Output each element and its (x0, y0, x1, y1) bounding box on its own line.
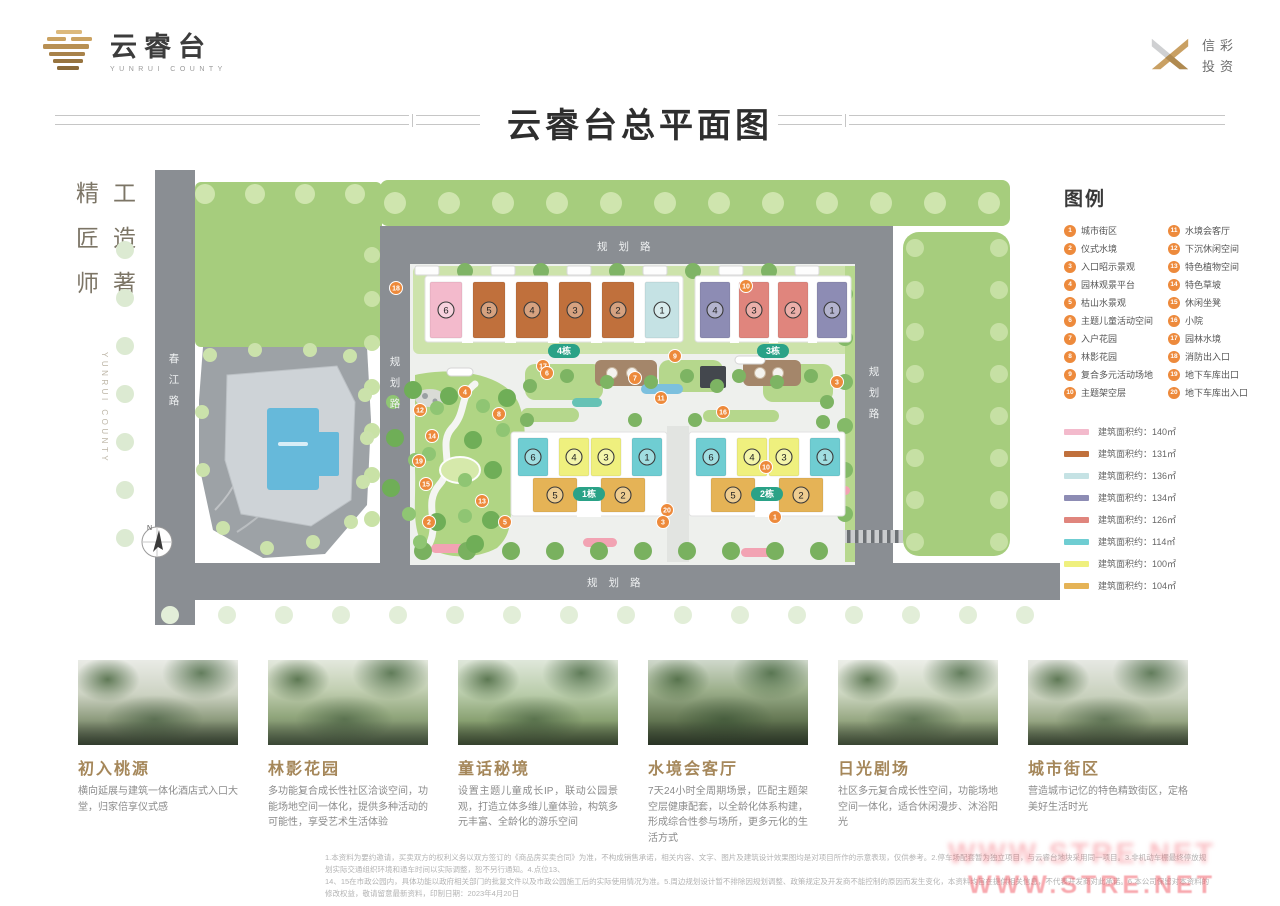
planter (795, 266, 819, 275)
area-legend-row: 建筑面积约：114㎡ (1064, 535, 1278, 548)
tree-icon (990, 323, 1008, 341)
map-marker-number: 5 (503, 519, 507, 526)
legend-title: 图例 (1064, 184, 1278, 211)
legend-item-number: 8 (1064, 351, 1076, 363)
legend-item: 1城市街区 (1064, 224, 1160, 237)
feature-tag (735, 356, 765, 364)
area-color-swatch (1064, 451, 1089, 457)
tree-icon (332, 606, 350, 624)
tree-icon (464, 431, 482, 449)
tree-icon (195, 405, 209, 419)
road-east (855, 226, 893, 576)
tree-icon (116, 433, 134, 451)
legend-item-label: 复合多元活动场地 (1081, 368, 1153, 381)
tree-icon (654, 192, 676, 214)
map-marker-number: 15 (422, 481, 430, 488)
tree-icon (990, 407, 1008, 425)
area-legend-row: 建筑面积约：126㎡ (1064, 513, 1278, 526)
legend-item-number: 15 (1168, 297, 1180, 309)
legend-item-number: 11 (1168, 225, 1180, 237)
tree-icon (458, 509, 472, 523)
planter (567, 266, 591, 275)
tree-icon (466, 535, 484, 553)
planter (643, 266, 667, 275)
legend-item-number: 1 (1064, 225, 1076, 237)
feature-image (838, 660, 998, 745)
map-marker-number: 14 (428, 433, 436, 440)
legend-item: 14特色草坡 (1168, 278, 1248, 291)
tree-icon (248, 343, 262, 357)
tree-icon (503, 606, 521, 624)
tree-icon (116, 529, 134, 547)
tree-icon (364, 291, 380, 307)
tree-icon (674, 606, 692, 624)
map-marker-number: 13 (478, 498, 486, 505)
map-marker-number: 7 (633, 375, 637, 382)
tree-icon (906, 407, 924, 425)
tree-icon (358, 388, 372, 402)
map-marker-number: 9 (673, 353, 677, 360)
tree-icon (546, 542, 564, 560)
tree-icon (446, 606, 464, 624)
tree-icon (678, 542, 696, 560)
legend-item: 9复合多元活动场地 (1064, 368, 1160, 381)
feature-image (648, 660, 808, 745)
legend-item: 16小院 (1168, 314, 1248, 327)
map-marker-number: 8 (497, 411, 501, 418)
building-core (634, 277, 645, 343)
unit-number: 3 (603, 452, 608, 463)
legend-item-label: 主题架空层 (1081, 386, 1126, 399)
corp-logo: 信彩 投资 (1148, 32, 1238, 81)
tree-icon (1016, 606, 1034, 624)
road-label: 划 (869, 386, 880, 399)
map-marker-number: 10 (742, 283, 750, 290)
planter (719, 266, 743, 275)
legend-item-label: 林影花园 (1081, 350, 1117, 363)
tree-icon (762, 192, 784, 214)
area-label: 建筑面积约：134㎡ (1098, 491, 1176, 504)
unit-number: 3 (751, 305, 756, 316)
tree-icon (810, 542, 828, 560)
legend-item: 19地下车库出口 (1168, 368, 1248, 381)
tree-icon (990, 239, 1008, 257)
legend-item-label: 入口昭示景观 (1081, 260, 1135, 273)
map-marker-number: 3 (835, 379, 839, 386)
tree-icon (482, 511, 500, 529)
tree-icon (306, 535, 320, 549)
area-label: 建筑面积约：100㎡ (1098, 557, 1176, 570)
road-label: 规 (869, 365, 880, 378)
unit-number: 3 (781, 452, 786, 463)
tree-icon (906, 281, 924, 299)
tree-icon (590, 542, 608, 560)
tree-icon (906, 323, 924, 341)
building-core (548, 433, 559, 481)
tree-icon (203, 348, 217, 362)
building-core (769, 277, 778, 343)
tree-icon (990, 533, 1008, 551)
brand-logo-icon (40, 28, 96, 79)
tree-icon (438, 192, 460, 214)
building-tag-label: 3栋 (766, 345, 780, 356)
tree-icon (600, 375, 614, 389)
unit-number: 2 (620, 490, 625, 501)
tree-icon (484, 461, 502, 479)
tree-icon (644, 375, 658, 389)
master-plan-map: 6543214栋43213栋6431521栋6431522栋 181091767… (75, 170, 1060, 625)
disclaimer-line1: 1.本资料为要约邀请，买卖双方的权利义务以双方签订的《商品房买卖合同》为准，不构… (325, 852, 1213, 876)
tree-icon (906, 239, 924, 257)
area-color-swatch (1064, 539, 1089, 545)
road-label: 江 (169, 374, 180, 386)
legend-item-label: 特色草坡 (1185, 278, 1221, 291)
legend-item-label: 消防出入口 (1185, 350, 1230, 363)
disclaimer: 1.本资料为要约邀请，买卖双方的权利义务以双方签订的《商品房买卖合同》为准，不构… (325, 852, 1213, 900)
feature-card: 日光剧场社区多元复合成长性空间，功能场地空间一体化，适合休闲漫步、沐浴阳光 (838, 660, 998, 846)
road-label: 春 (169, 353, 180, 365)
area-label: 建筑面积约：114㎡ (1098, 535, 1175, 548)
tree-icon (634, 542, 652, 560)
unit-number: 4 (749, 452, 754, 463)
legend-item-label: 园林水境 (1185, 332, 1221, 345)
tree-icon (731, 606, 749, 624)
tree-icon (458, 473, 472, 487)
unit-number: 6 (530, 452, 535, 463)
legend-item: 5枯山水景观 (1064, 296, 1160, 309)
building-tag-label: 4栋 (557, 345, 571, 356)
legend-item: 3入口昭示景观 (1064, 260, 1160, 273)
tree-icon (990, 365, 1008, 383)
tree-icon (303, 343, 317, 357)
tree-icon (413, 535, 427, 549)
building-core (808, 277, 817, 343)
tree-icon (364, 335, 380, 351)
legend-item: 2仪式水境 (1064, 242, 1160, 255)
legend-item-number: 12 (1168, 243, 1180, 255)
disclaimer-line2: 14、15在市政公园内，具体功能以政府相关部门的批复文件以及市政公园施工后的实际… (325, 876, 1213, 900)
tree-icon (116, 385, 134, 403)
road-label: 划 (390, 376, 401, 389)
tree-icon (732, 369, 746, 383)
tree-icon (476, 399, 490, 413)
tree-icon (440, 387, 458, 405)
legend-item-number: 9 (1064, 369, 1076, 381)
feature-image (268, 660, 428, 745)
area-legend-row: 建筑面积约：136㎡ (1064, 469, 1278, 482)
area-label: 建筑面积约：131㎡ (1098, 447, 1176, 460)
tree-icon (384, 192, 406, 214)
tree-icon (356, 475, 370, 489)
legend-item-label: 水境会客厅 (1185, 224, 1230, 237)
map-marker-number: 6 (545, 370, 549, 377)
feature-card: 童话秘境设置主题儿童成长IP，联动公园景观，打造立体多维儿童体验，构筑多元丰富、… (458, 660, 618, 846)
tree-icon (343, 349, 357, 363)
tree-icon (906, 533, 924, 551)
tree-icon (906, 365, 924, 383)
tree-icon (804, 369, 818, 383)
unit-number: 4 (712, 305, 717, 316)
legend-item-number: 18 (1168, 351, 1180, 363)
feature-description: 设置主题儿童成长IP，联动公园景观，打造立体多维儿童体验，构筑多元丰富、全龄化的… (458, 784, 618, 831)
map-marker-number: 4 (463, 389, 467, 396)
tree-icon (680, 369, 694, 383)
building-core (726, 433, 737, 481)
building-core (505, 277, 516, 343)
tree-icon (600, 192, 622, 214)
feature-cards: 初入桃源横向延展与建筑一体化酒店式入口大堂，归家倍享仪式感林影花园多功能复合成长… (78, 660, 1188, 846)
legend-item-label: 特色植物空间 (1185, 260, 1239, 273)
garage-ramp (845, 530, 903, 543)
legend-item-label: 小院 (1185, 314, 1203, 327)
road-label: 路 (869, 407, 880, 420)
building-core (548, 277, 559, 343)
title-ornament-left (55, 116, 480, 124)
unit-number: 2 (798, 490, 803, 501)
feature-title: 日光剧场 (838, 755, 998, 779)
map-marker-number: 2 (427, 519, 431, 526)
legend-item: 7入户花园 (1064, 332, 1160, 345)
tree-icon (688, 413, 702, 427)
unit-number: 1 (829, 305, 834, 316)
tree-icon (218, 606, 236, 624)
feature-description: 横向延展与建筑一体化酒店式入口大堂，归家倍享仪式感 (78, 784, 238, 815)
legend-item: 18消防出入口 (1168, 350, 1248, 363)
unit-number: 1 (822, 452, 827, 463)
legend-item-label: 主题儿童活动空间 (1081, 314, 1153, 327)
tree-icon (196, 463, 210, 477)
feature-image (1028, 660, 1188, 745)
tree-icon (816, 192, 838, 214)
area-color-swatch (1064, 429, 1089, 435)
feature-description: 7天24小时全周期场景，匹配主题架空层健康配套，以全龄化体系构建，形成综合性参与… (648, 784, 808, 846)
area-label: 建筑面积约：136㎡ (1098, 469, 1176, 482)
tree-icon (845, 606, 863, 624)
building-tag-label: 2栋 (760, 488, 774, 499)
area-legend-row: 建筑面积约：100㎡ (1064, 557, 1278, 570)
corp-name-line1: 信彩 (1202, 36, 1238, 57)
tree-icon (816, 415, 830, 429)
feature-title: 林影花园 (268, 755, 428, 779)
tree-icon (902, 606, 920, 624)
brand-logo: 云睿台 YUNRUI COUNTY (40, 28, 227, 79)
tree-icon (364, 247, 380, 263)
tree-icon (116, 241, 134, 259)
feature-title: 初入桃源 (78, 755, 238, 779)
legend-item-number: 2 (1064, 243, 1076, 255)
unit-number: 2 (790, 305, 795, 316)
road-label: 规 (390, 355, 401, 368)
planter (491, 266, 515, 275)
unit-number: 1 (659, 305, 664, 316)
area-legend: 建筑面积约：140㎡建筑面积约：131㎡建筑面积约：136㎡建筑面积约：134㎡… (1064, 425, 1278, 592)
legend-item: 11水境会客厅 (1168, 224, 1248, 237)
unit-number: 2 (615, 305, 620, 316)
brand-name: 云睿台 (110, 34, 227, 61)
tree-icon (116, 481, 134, 499)
legend-item-number: 19 (1168, 369, 1180, 381)
tree-icon (344, 515, 358, 529)
tree-icon (492, 192, 514, 214)
legend-item: 12下沉休闲空间 (1168, 242, 1248, 255)
area-color-swatch (1064, 583, 1089, 589)
legend-item: 15休闲坐凳 (1168, 296, 1248, 309)
corp-name-line2: 投资 (1202, 57, 1238, 78)
building-2栋: 6431522栋 (689, 432, 845, 517)
building-tag-label: 1栋 (582, 488, 596, 499)
road-label: 规划路 (587, 576, 652, 589)
tree-icon (870, 192, 892, 214)
unit-number: 4 (571, 452, 576, 463)
tree-icon (628, 413, 642, 427)
tree-icon (364, 511, 380, 527)
area-color-swatch (1064, 561, 1089, 567)
legend-item-label: 下沉休闲空间 (1185, 242, 1239, 255)
corp-logo-icon (1148, 32, 1192, 81)
tree-icon (722, 542, 740, 560)
map-marker-number: 10 (762, 464, 770, 471)
tree-icon (990, 449, 1008, 467)
legend-panel: 图例 1城市街区2仪式水境3入口昭示景观4园林观景平台5枯山水景观6主题儿童活动… (1064, 184, 1278, 592)
tree-icon (275, 606, 293, 624)
tree-icon (260, 541, 274, 555)
legend-item-number: 13 (1168, 261, 1180, 273)
unit-number: 3 (572, 305, 577, 316)
tree-icon (389, 606, 407, 624)
brand-subtitle: YUNRUI COUNTY (110, 66, 227, 73)
tree-icon (345, 184, 365, 204)
tree-icon (502, 542, 520, 560)
legend-item-label: 枯山水景观 (1081, 296, 1126, 309)
feature-card: 城市街区营造城市记忆的特色精致街区，定格美好生活时光 (1028, 660, 1188, 846)
building-core (462, 277, 473, 343)
tree-icon (402, 507, 416, 521)
tree-icon (820, 395, 834, 409)
feature-image (78, 660, 238, 745)
tree-icon (520, 413, 534, 427)
tree-icon (924, 192, 946, 214)
area-legend-row: 建筑面积约：134㎡ (1064, 491, 1278, 504)
unit-number: 1 (644, 452, 649, 463)
tree-icon (496, 423, 510, 437)
map-marker-number: 20 (663, 507, 671, 514)
building-core (591, 277, 602, 343)
legend-item-label: 仪式水境 (1081, 242, 1117, 255)
tree-icon (404, 381, 422, 399)
building-core (730, 277, 739, 343)
map-marker-number: 19 (415, 458, 423, 465)
feature-description: 社区多元复合成长性空间，功能场地空间一体化，适合休闲漫步、沐浴阳光 (838, 784, 998, 831)
road-label: 规划路 (597, 240, 662, 253)
map-marker-number: 3 (661, 519, 665, 526)
tree-icon (386, 429, 404, 447)
unit-number: 5 (730, 490, 735, 501)
unit-number: 5 (552, 490, 557, 501)
feature-description: 营造城市记忆的特色精致街区，定格美好生活时光 (1028, 784, 1188, 815)
area-legend-row: 建筑面积约：131㎡ (1064, 447, 1278, 460)
tree-icon (560, 606, 578, 624)
feature-card: 林影花园多功能复合成长性社区洽谈空间，功能场地空间一体化，提供多种活动的可能性，… (268, 660, 428, 846)
legend-item-number: 6 (1064, 315, 1076, 327)
tree-icon (195, 184, 215, 204)
tree-icon (216, 521, 230, 535)
legend-item-label: 入户花园 (1081, 332, 1117, 345)
area-label: 建筑面积约：104㎡ (1098, 579, 1176, 592)
map-marker-number: 12 (416, 407, 424, 414)
tree-icon (382, 479, 400, 497)
tree-icon (906, 449, 924, 467)
feature-title: 童话秘境 (458, 755, 618, 779)
feature-tag (447, 368, 473, 376)
unit-number: 5 (486, 305, 491, 316)
unit-number: 6 (443, 305, 448, 316)
tree-icon (708, 192, 730, 214)
tree-icon (770, 375, 784, 389)
tree-icon (116, 289, 134, 307)
building-core (621, 433, 632, 481)
legend-item-number: 7 (1064, 333, 1076, 345)
tree-icon (116, 337, 134, 355)
tree-icon (906, 491, 924, 509)
unit-number: 6 (708, 452, 713, 463)
tree-icon (430, 401, 444, 415)
tree-icon (523, 379, 537, 393)
tree-icon (360, 431, 374, 445)
tree-icon (766, 542, 784, 560)
tree-icon (990, 281, 1008, 299)
legend-item: 8林影花园 (1064, 350, 1160, 363)
area-label: 建筑面积约：140㎡ (1098, 425, 1176, 438)
tree-icon (245, 184, 265, 204)
feature-card: 水境会客厅7天24小时全周期场景，匹配主题架空层健康配套，以全龄化体系构建，形成… (648, 660, 808, 846)
tree-icon (788, 606, 806, 624)
feature-title: 水境会客厅 (648, 755, 808, 779)
building-core (799, 433, 810, 481)
planter (415, 266, 439, 275)
legend-item-number: 17 (1168, 333, 1180, 345)
feature-description: 多功能复合成长性社区洽谈空间，功能场地空间一体化，提供多种活动的可能性，享受艺术… (268, 784, 428, 831)
unit-number: 4 (529, 305, 534, 316)
tree-icon (498, 389, 516, 407)
legend-item-number: 10 (1064, 387, 1076, 399)
legend-item-number: 3 (1064, 261, 1076, 273)
legend-items: 1城市街区2仪式水境3入口昭示景观4园林观景平台5枯山水景观6主题儿童活动空间7… (1064, 224, 1278, 399)
area-color-swatch (1064, 473, 1089, 479)
feature-card: 初入桃源横向延展与建筑一体化酒店式入口大堂，归家倍享仪式感 (78, 660, 238, 846)
area-color-swatch (1064, 495, 1089, 501)
tree-icon (295, 184, 315, 204)
legend-item: 6主题儿童活动空间 (1064, 314, 1160, 327)
legend-item: 10主题架空层 (1064, 386, 1160, 399)
legend-item-number: 5 (1064, 297, 1076, 309)
tree-icon (560, 369, 574, 383)
map-marker-number: 11 (657, 395, 665, 402)
tree-icon (710, 379, 724, 393)
map-marker-number: 1 (773, 514, 777, 521)
legend-item: 20地下车库出入口 (1168, 386, 1248, 399)
area-legend-row: 建筑面积约：140㎡ (1064, 425, 1278, 438)
tree-icon (617, 606, 635, 624)
tree-icon (161, 606, 179, 624)
compass-n: N (147, 525, 152, 532)
legend-item: 13特色植物空间 (1168, 260, 1248, 273)
legend-item-number: 16 (1168, 315, 1180, 327)
feature-tag (572, 398, 602, 407)
road-label: 路 (169, 394, 180, 407)
legend-item-label: 城市街区 (1081, 224, 1117, 237)
feature-image (458, 660, 618, 745)
area-color-swatch (1064, 517, 1089, 523)
